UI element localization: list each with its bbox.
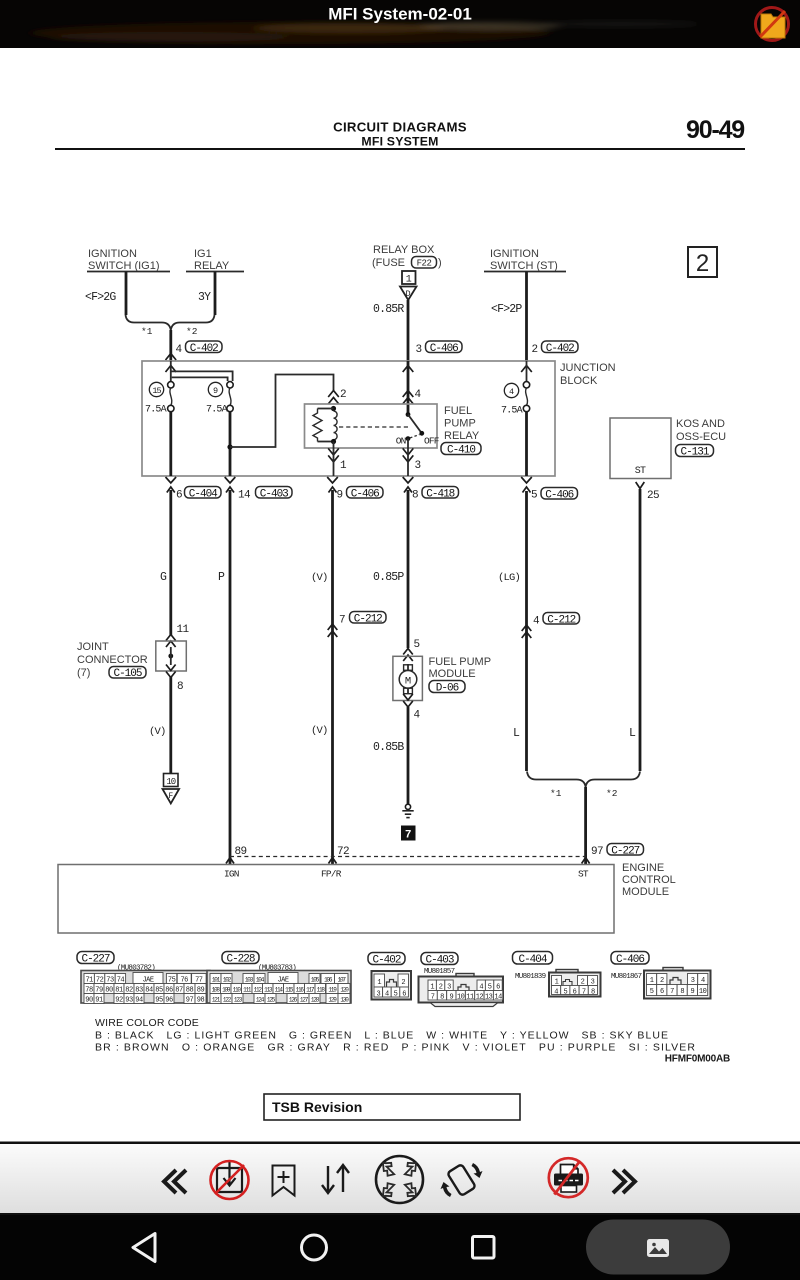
svg-text:7: 7 (582, 988, 586, 996)
svg-text:3: 3 (415, 460, 421, 472)
svg-text:IG1: IG1 (194, 248, 212, 260)
svg-text:FUEL: FUEL (444, 405, 472, 417)
svg-text:OSS-ECU: OSS-ECU (676, 431, 726, 443)
svg-text:C-403: C-403 (425, 955, 453, 967)
svg-text:PUMP: PUMP (444, 418, 476, 430)
svg-text:0.85B: 0.85B (373, 741, 404, 754)
svg-text:ENGINE: ENGINE (622, 862, 664, 874)
svg-text:L: L (629, 727, 636, 740)
svg-text:1: 1 (406, 275, 412, 286)
svg-text:FP/R: FP/R (321, 869, 342, 880)
svg-text:FUEL PUMP: FUEL PUMP (429, 656, 492, 668)
svg-text:92: 92 (115, 997, 123, 1005)
svg-text:4: 4 (414, 710, 421, 722)
svg-text:C-406: C-406 (351, 489, 379, 501)
svg-text:C-418: C-418 (426, 489, 454, 501)
svg-text:C-212: C-212 (547, 615, 575, 627)
svg-text:(LG): (LG) (498, 572, 520, 584)
svg-text:MFI System-02-01: MFI System-02-01 (328, 5, 472, 24)
svg-text:ST: ST (578, 869, 589, 880)
svg-text:3Y: 3Y (198, 291, 211, 304)
svg-text:4: 4 (509, 387, 514, 397)
svg-text:WIRE COLOR CODE: WIRE COLOR CODE (95, 1017, 199, 1029)
svg-text:(7): (7) (77, 667, 90, 679)
svg-text:C-406: C-406 (430, 343, 458, 355)
svg-text:MU801867: MU801867 (611, 973, 642, 981)
svg-text:94: 94 (135, 997, 143, 1005)
svg-text:10: 10 (457, 994, 465, 1002)
svg-text:7: 7 (431, 994, 435, 1002)
svg-text:C-404: C-404 (518, 954, 547, 966)
svg-text:97: 97 (186, 997, 194, 1005)
svg-text:JOINT: JOINT (77, 641, 109, 653)
svg-text:2: 2 (401, 979, 405, 987)
svg-text:25: 25 (647, 490, 659, 502)
svg-text:10: 10 (699, 988, 707, 996)
svg-text:ON: ON (396, 436, 406, 447)
svg-text:BLOCK: BLOCK (560, 375, 598, 387)
svg-text:9: 9 (691, 988, 695, 996)
svg-text:(V): (V) (311, 572, 328, 584)
svg-text:C-131: C-131 (680, 447, 709, 459)
svg-text:7: 7 (670, 988, 674, 996)
svg-text:9: 9 (213, 386, 218, 396)
svg-text:3: 3 (691, 977, 695, 985)
svg-text:11: 11 (177, 624, 190, 636)
svg-text:1: 1 (650, 977, 654, 985)
svg-text:CONNECTOR: CONNECTOR (77, 654, 148, 666)
svg-text:14: 14 (494, 994, 502, 1002)
svg-text:2: 2 (660, 977, 664, 985)
svg-text:C-227: C-227 (81, 954, 109, 966)
svg-text:C-227: C-227 (611, 846, 639, 858)
svg-text:7.5A: 7.5A (145, 405, 167, 416)
svg-text:CIRCUIT DIAGRAMS: CIRCUIT DIAGRAMS (333, 120, 467, 135)
svg-text:9: 9 (449, 994, 453, 1002)
svg-text:90: 90 (85, 997, 93, 1005)
svg-text:C-406: C-406 (616, 954, 644, 966)
svg-text:4: 4 (701, 977, 705, 985)
svg-text:*2: *2 (186, 326, 198, 337)
svg-text:2: 2 (340, 389, 346, 401)
svg-text:L: L (513, 727, 520, 740)
svg-text:*2: *2 (606, 788, 618, 799)
svg-text:(V): (V) (311, 725, 328, 737)
svg-text:RELAY BOX: RELAY BOX (373, 244, 435, 256)
svg-text:0.85P: 0.85P (373, 571, 404, 584)
svg-text:1: 1 (377, 979, 381, 987)
svg-text:4: 4 (385, 991, 389, 999)
svg-text:IGNITION: IGNITION (88, 248, 137, 260)
svg-text:7: 7 (339, 615, 345, 627)
svg-text:93: 93 (125, 997, 133, 1005)
svg-text:4: 4 (533, 616, 540, 628)
svg-text:C-402: C-402 (372, 955, 400, 967)
svg-text:97: 97 (591, 846, 603, 858)
svg-text:4: 4 (415, 389, 422, 401)
svg-text:11: 11 (466, 994, 474, 1002)
svg-text:4: 4 (554, 988, 558, 996)
svg-text:7.5A: 7.5A (206, 405, 228, 416)
svg-text:MU801857: MU801857 (424, 968, 455, 976)
svg-text:96: 96 (165, 997, 173, 1005)
svg-text:IGN: IGN (224, 869, 239, 880)
svg-text:): ) (438, 257, 442, 269)
svg-text:(V): (V) (149, 726, 166, 738)
svg-text:C-410: C-410 (447, 445, 475, 457)
svg-text:6: 6 (402, 991, 406, 999)
svg-text:MU801839: MU801839 (515, 973, 546, 981)
svg-text:15: 15 (152, 386, 161, 396)
svg-text:0.85R: 0.85R (373, 303, 404, 316)
svg-text:5: 5 (531, 490, 537, 502)
svg-text:12: 12 (476, 994, 484, 1002)
svg-text:6: 6 (660, 988, 664, 996)
svg-text:RELAY: RELAY (444, 430, 480, 442)
svg-text:RELAY: RELAY (194, 260, 230, 272)
svg-text:<F>2P: <F>2P (491, 303, 522, 316)
svg-text:5: 5 (650, 988, 654, 996)
svg-text:3: 3 (376, 991, 380, 999)
svg-text:C-403: C-403 (260, 489, 288, 501)
svg-text:SWITCH (IG1): SWITCH (IG1) (88, 260, 160, 272)
svg-text:3: 3 (416, 344, 422, 356)
svg-text:84: 84 (145, 987, 153, 995)
svg-text:B : BLACK LG : LIGHT GREEN: B : BLACK LG : LIGHT GREEN G : GREEN L :… (95, 1030, 668, 1042)
svg-text:MFI SYSTEM: MFI SYSTEM (361, 135, 438, 149)
svg-text:C-228: C-228 (226, 954, 254, 966)
svg-text:F22: F22 (417, 259, 432, 269)
svg-text:8: 8 (591, 988, 595, 996)
svg-text:2: 2 (696, 250, 709, 277)
svg-text:TSB Revision: TSB Revision (272, 1099, 362, 1115)
svg-text:KOS AND: KOS AND (676, 418, 725, 430)
svg-text:OFF: OFF (424, 436, 440, 447)
svg-text:BR : BROWN O : ORANGE GR :: BR : BROWN O : ORANGE GR : GRAY R : RED … (95, 1042, 695, 1054)
svg-text:5: 5 (563, 988, 567, 996)
svg-text:SWITCH (ST): SWITCH (ST) (490, 260, 558, 272)
svg-text:14: 14 (238, 490, 251, 502)
svg-text:87: 87 (175, 987, 183, 995)
svg-text:C-402: C-402 (190, 343, 218, 355)
svg-text:D-06: D-06 (436, 683, 459, 695)
svg-text:6: 6 (573, 988, 577, 996)
svg-text:CONTROL: CONTROL (622, 874, 676, 886)
svg-text:*1: *1 (550, 788, 562, 799)
svg-text:(FUSE: (FUSE (372, 257, 405, 269)
svg-text:8: 8 (440, 994, 444, 1002)
svg-text:IGNITION: IGNITION (490, 248, 539, 260)
svg-text:JUNCTION: JUNCTION (560, 362, 616, 374)
svg-text:6: 6 (176, 490, 182, 502)
svg-text:8: 8 (412, 490, 418, 502)
svg-text:5: 5 (394, 991, 398, 999)
svg-text:80: 80 (105, 987, 113, 995)
svg-text:5: 5 (414, 639, 420, 651)
svg-text:D: D (405, 289, 410, 299)
svg-text:4: 4 (176, 344, 183, 356)
svg-text:C-406: C-406 (545, 490, 573, 502)
svg-text:M: M (405, 676, 411, 688)
svg-text:10: 10 (166, 777, 175, 787)
svg-text:MODULE: MODULE (622, 886, 669, 898)
svg-text:HFMF0M00AB: HFMF0M00AB (665, 1054, 730, 1065)
svg-text:P: P (218, 571, 225, 584)
svg-text:9: 9 (337, 490, 343, 502)
svg-text:8: 8 (680, 988, 684, 996)
svg-text:C-402: C-402 (546, 343, 574, 355)
svg-text:G: G (160, 571, 167, 584)
svg-text:ST: ST (635, 466, 646, 477)
svg-text:91: 91 (95, 997, 103, 1005)
svg-text:C-105: C-105 (113, 668, 141, 680)
svg-text:2: 2 (532, 344, 538, 356)
svg-text:F: F (168, 792, 173, 801)
svg-text:98: 98 (197, 997, 205, 1005)
svg-text:1: 1 (340, 460, 347, 472)
svg-text:7.5A: 7.5A (501, 406, 523, 417)
svg-text:C-404: C-404 (189, 489, 218, 501)
svg-text:MODULE: MODULE (429, 668, 476, 680)
svg-text:<F>2G: <F>2G (85, 291, 116, 304)
svg-text:13: 13 (485, 994, 493, 1002)
svg-text:C-212: C-212 (354, 614, 382, 626)
svg-text:8: 8 (177, 681, 183, 693)
svg-text:95: 95 (155, 997, 163, 1005)
svg-text:7: 7 (405, 829, 411, 841)
svg-text:90-49: 90-49 (686, 116, 744, 144)
svg-text:*1: *1 (141, 326, 153, 337)
